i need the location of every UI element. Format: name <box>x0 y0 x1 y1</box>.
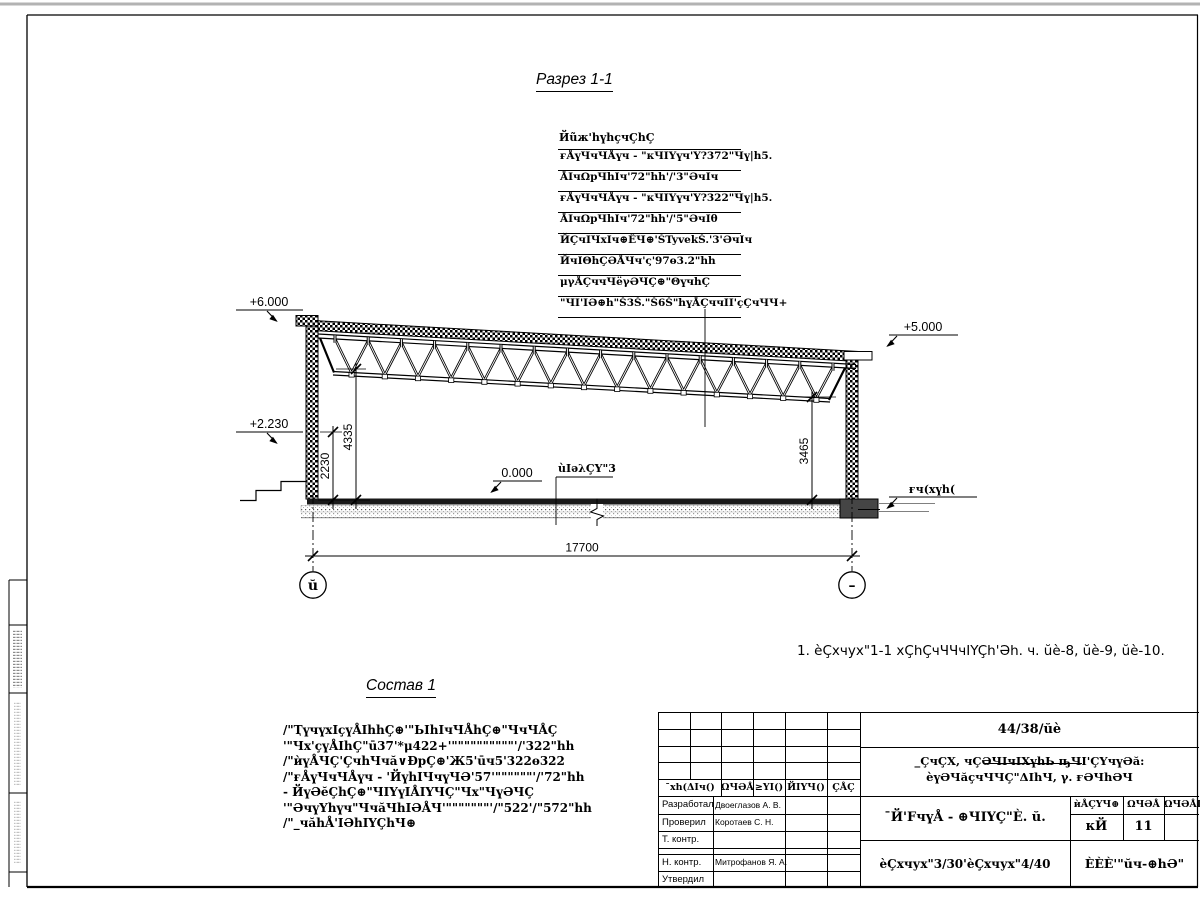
composition-line: /"ҬүчүхIçүÅIhhÇ⊕'"ЬIhIчЧÅhÇ⊕"ЧчЧÅÇ <box>283 723 592 739</box>
elevation-plus2230: +2.230 <box>250 417 289 431</box>
right-wall <box>846 360 858 499</box>
composition-line: - ЙүӘĕÇhÇ⊕"ЧIYүIÅIYЧÇ"Чх"ЧүӘЧÇ <box>283 785 592 801</box>
project-name: _ÇчÇХ, чÇӘЧIчIХүhЬ ҧЧI'ÇYчүӘă: èүӘЧăçчЧЧ… <box>860 747 1199 785</box>
axis-label-right: – <box>849 578 856 594</box>
elevation-plus6000: +6.000 <box>250 295 289 309</box>
revision-header-col3: ≥YI() <box>753 779 785 796</box>
role-t-kontr: Т. контр. <box>659 831 716 848</box>
drawing-sheet: ùIәλÇY"3 +6.000 +2.230 +5.000 0.000 ғч(х… <box>0 0 1200 900</box>
name-proveril: Коротаев С. Н. <box>713 814 787 831</box>
project-name-line2: èүӘЧăçчЧЧÇ"ΔIhЧ, γ. ғӘЧhӘЧ <box>860 770 1199 786</box>
composition-line: /"ғÅүЧчЧÅүч - 'ЙүhIЧчүЧӘ'57'""""""'/'72"… <box>283 770 592 786</box>
role-utverdil: Утвердил <box>659 871 716 888</box>
roof-callout-row: ÅIчΩрЧhIч'72"hh'/'3"ӘчIч <box>558 170 741 191</box>
right-fascia <box>844 352 872 361</box>
sheet-title: ¯Й'FчүÅ - ⊕ЧIYÇ"È. ŭ. <box>860 796 1070 840</box>
title-block: ¯хh(ΔIч() ΩЧӘÅ ≥YI() ЙIYЧ() ÇÅÇ Разработ… <box>658 712 1199 888</box>
left-steps <box>240 482 306 501</box>
roof <box>296 316 872 362</box>
roof-callout-row: ЙчIΘhÇӘÅЧч'ς'97ө3.2"hh <box>558 254 741 275</box>
section-title: Разрез 1-1 <box>536 71 613 92</box>
elevation-plus5000: +5.000 <box>904 320 943 334</box>
composition-list: /"ҬүчүхIçүÅIhhÇ⊕'"ЬIhIчЧÅhÇ⊕"ЧчЧÅÇ '"Чх'… <box>283 723 592 832</box>
left-margin-vertical-text <box>13 630 22 864</box>
left-parapet-cap <box>296 316 318 327</box>
name-razrabotal: Двоеглазов А. В. <box>713 796 787 814</box>
right-foundation <box>840 499 878 518</box>
sheets-total-header: ΩЧӘÅI <box>1164 796 1199 814</box>
elevation-ground-right: ғч(хүh( <box>909 483 955 496</box>
sheet-header: ΩЧӘÅ <box>1123 796 1164 814</box>
project-name-strike <box>984 763 1082 765</box>
composition-line: '"ӘчүYhүч"ЧчăЧhIӘÅЧ'"""""""'/"522'/"572"… <box>283 801 592 817</box>
composition-line: /"_чăhÅ'IӘhIYÇhЧ⊕ <box>283 816 592 832</box>
floor-slab <box>307 499 853 505</box>
dimension-3465: 3465 <box>797 437 811 464</box>
revision-header-izm: ¯хh(ΔIч() <box>659 779 721 796</box>
sheet-subtitle: èÇхчух"3/30'èÇхчух"4/40 <box>860 840 1070 888</box>
floor-leader-label: ùIәλÇY"3 <box>558 462 616 475</box>
truss-gussets <box>349 373 819 403</box>
roof-callout-header: Йũж'hүhçчÇhÇ <box>559 131 655 144</box>
revision-header-col5: ÇÅÇ <box>827 779 860 796</box>
stage-header: ѝÅÇYЧ⊕ <box>1070 796 1123 814</box>
roof-callout-row: ғÅүЧчЧÅүч - "кЧIYүч'Y?322"Чү|h5. <box>558 191 741 212</box>
composition-title: Состав 1 <box>366 677 436 698</box>
name-n-kontr: Митрофанов Я. А. <box>713 854 787 871</box>
sheet-number: 11 <box>1123 814 1164 840</box>
roof-callout-row: ЙÇчIЧхIч⊕ÊЧ⊕'ŠTyvekŠ.'3'ӘчIч <box>558 233 741 254</box>
stage-value: кЙ <box>1070 814 1123 840</box>
role-razrabotal: Разработал <box>659 796 716 814</box>
roof-callout-row: "ЧI'IӘ⊕h"Š3Š."Š6Š"hүÅÇччII'çÇчЧЧ+ <box>558 296 741 318</box>
dimension-4335: 4335 <box>341 423 355 450</box>
roof-callout-row: μγÅÇччЧёγӘЧÇ⊕"ΘүчhÇ <box>558 275 741 296</box>
project-code: 44/38/ŭè <box>860 713 1199 747</box>
drawing-note: 1. èÇхчух"1-1 хÇhÇчЧЧчIYÇh'Әh. ч. ŭè-8, … <box>797 643 1165 659</box>
roof-callout-row: ÅIчΩрЧhIч'72"hh'/'5"ӘчIθ <box>558 212 741 233</box>
axis-label-left: ŭ <box>308 578 318 594</box>
roof-callout: ғÅүЧчЧÅүч - "кЧIYүч'Y?372"Чү|h5. ÅIчΩрЧh… <box>558 149 741 318</box>
elevation-zero: 0.000 <box>501 466 532 480</box>
roof-callout-row: ғÅүЧчЧÅүч - "кЧIYүч'Y?372"Чү|h5. <box>558 149 741 170</box>
dimension-17700: 17700 <box>565 541 599 555</box>
truss-end-left <box>320 338 334 373</box>
organization-name: ÈÈÈ'"ŭч-⊕hӘ" <box>1070 840 1199 888</box>
role-n-kontr: Н. контр. <box>659 854 716 871</box>
revision-header-col2: ΩЧӘÅ <box>721 779 753 796</box>
composition-line: /"ѝүÅЧÇ'ÇчhЧчă∨ĐрÇ⊕'Ж5'ūч5'322ө322 <box>283 754 592 770</box>
left-wall <box>306 326 318 499</box>
truss-end-right <box>829 368 845 400</box>
role-proveril: Проверил <box>659 814 716 831</box>
window-top-edge <box>0 3 1200 6</box>
composition-line: '"Чх'çүÅIhÇ"ū37'*μ422+'""""""""""'/'322"… <box>283 739 592 755</box>
dimension-2230: 2230 <box>318 452 332 479</box>
revision-header-col4: ЙIYЧ() <box>785 779 827 796</box>
floor <box>240 482 935 527</box>
